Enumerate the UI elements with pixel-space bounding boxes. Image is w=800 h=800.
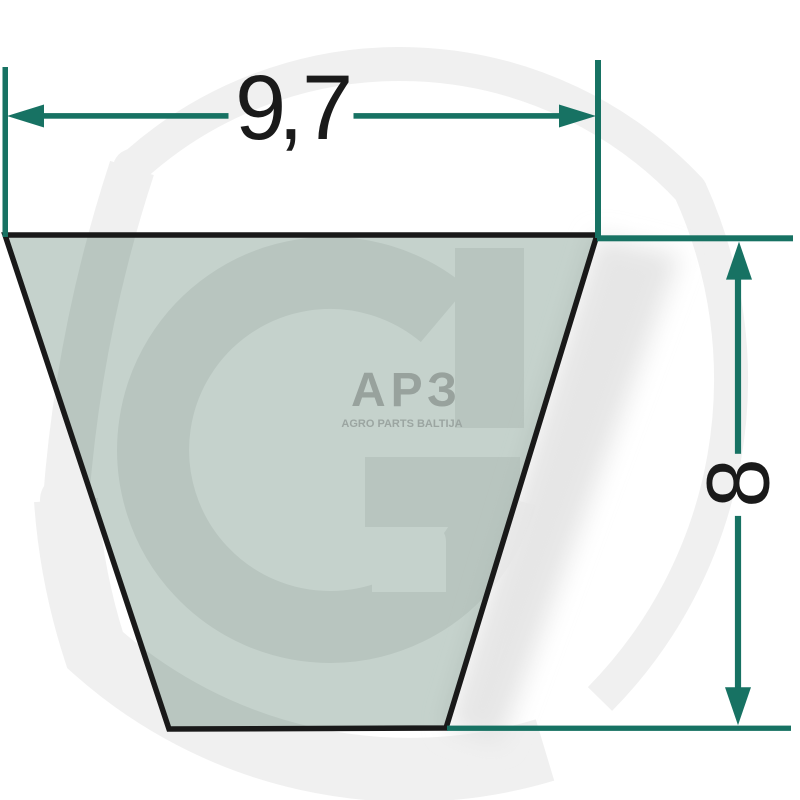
svg-text:9,7: 9,7 [235, 57, 353, 159]
svg-text:AGRO PARTS BALTIJA: AGRO PARTS BALTIJA [341, 418, 462, 430]
svg-text:8: 8 [688, 458, 788, 508]
svg-text:АРЗ: АРЗ [351, 364, 462, 417]
